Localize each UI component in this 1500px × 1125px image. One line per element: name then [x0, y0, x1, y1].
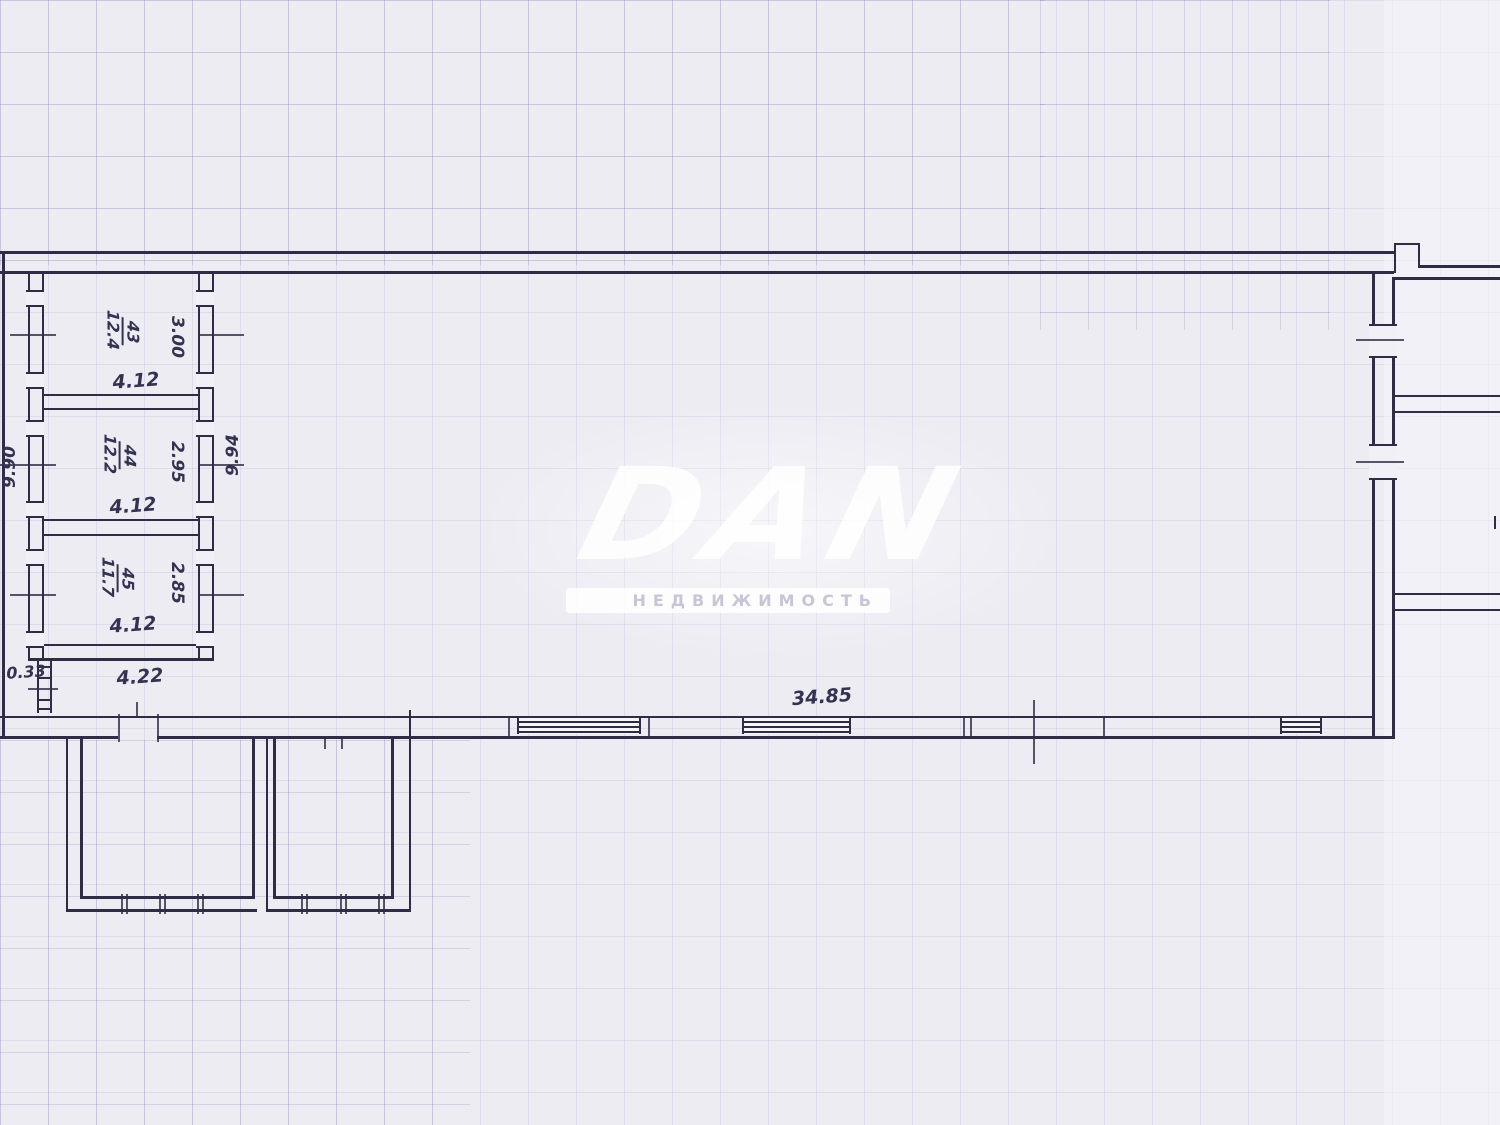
porch-step-tick	[121, 894, 123, 914]
wall-sep-43-44-b	[42, 408, 200, 410]
wall-bottom-outer-a	[0, 736, 118, 739]
watermark-bar: НЕДВИЖИМОСТЬ	[566, 588, 890, 613]
dim-hall-width: 34.85	[791, 684, 852, 710]
dim-porch-width: 4.22	[116, 664, 164, 689]
room-45-label: 45 11.7	[99, 554, 136, 601]
porch-step-tick	[345, 894, 347, 914]
porch2-wall-bottom	[273, 896, 394, 899]
chimney-right	[50, 661, 52, 713]
wall-joint	[970, 716, 972, 737]
porch-step-tick	[306, 894, 308, 914]
door-jamb	[341, 738, 343, 749]
dim-tick	[198, 594, 244, 596]
block-wall-bottom-outer	[28, 658, 214, 661]
window-opening	[26, 420, 44, 437]
porch1-outer-bottom	[66, 909, 257, 912]
chimney-rung	[37, 699, 52, 701]
dim-tick	[1356, 461, 1404, 463]
door-opening	[196, 549, 214, 566]
dim-inner-total: 9.94	[223, 434, 243, 476]
graph-grid-topright	[1040, 0, 1330, 330]
room-43-area: 12.4	[104, 307, 122, 352]
porch2-outer-left	[266, 736, 268, 911]
porch-step-tick	[202, 894, 204, 914]
porch1-wall-bottom	[80, 896, 255, 899]
door-jamb	[1494, 516, 1496, 529]
room-45-depth-dim: 2.85	[167, 562, 187, 604]
wall-top-inner	[0, 271, 1394, 274]
porch-step-tick	[301, 894, 303, 914]
room-44-number: 44	[119, 441, 139, 471]
porch2-wall-left	[273, 736, 276, 898]
room-43-number: 43	[122, 317, 142, 347]
wall-top-right-outer	[1418, 265, 1500, 268]
room-45-width-dim: 4.12	[109, 612, 157, 637]
wall-joint	[963, 716, 965, 737]
dim-tick	[198, 334, 244, 336]
door-jamb	[118, 714, 120, 742]
dim-extension-line	[1033, 700, 1035, 764]
block-wall-bottom-inner	[28, 644, 214, 646]
wall-sep-44-45-a	[42, 519, 200, 521]
dim-tick	[10, 334, 56, 336]
graph-grid-bottomleft	[0, 740, 470, 1125]
right-room-wall-a	[1392, 395, 1500, 397]
door-opening	[196, 631, 214, 648]
room-44-depth-dim: 2.95	[167, 441, 187, 483]
wall-bottom-inner	[0, 716, 1374, 718]
porch-step-tick	[159, 894, 161, 914]
door-opening	[196, 290, 214, 307]
dim-tick	[136, 702, 138, 716]
porch-step-tick	[197, 894, 199, 914]
room-43-depth-dim: 3.00	[167, 316, 187, 358]
window-hatched	[517, 718, 641, 734]
chimney-rung	[37, 708, 52, 710]
wall-left-outer	[2, 251, 5, 736]
wall-top-right-inner	[1394, 277, 1500, 280]
room-45-number: 45	[117, 564, 137, 594]
window-hatched	[1280, 718, 1322, 734]
right-room-wall-b	[1392, 411, 1500, 413]
wall-joint	[1103, 716, 1105, 737]
wall-joint	[508, 716, 510, 737]
door-opening	[196, 501, 214, 518]
porch1-wall-left	[80, 736, 83, 898]
room-44-width-dim: 4.12	[109, 493, 157, 518]
graph-grid-topleft	[0, 0, 1045, 265]
door-opening	[196, 420, 214, 437]
window-opening	[26, 501, 44, 518]
porch-step-tick	[378, 894, 380, 914]
porch1-wall-right	[252, 736, 255, 898]
room-44-label: 44 12.2	[101, 431, 138, 478]
window-opening	[26, 372, 44, 389]
door-jamb	[324, 738, 326, 749]
dim-tick	[1356, 339, 1404, 341]
right-room-wall-d	[1392, 609, 1500, 611]
window-opening	[26, 631, 44, 648]
window-opening	[26, 549, 44, 566]
porch-step-tick	[164, 894, 166, 914]
room-43-width-dim: 4.12	[112, 368, 160, 393]
porch-step-tick	[340, 894, 342, 914]
porch-step-tick	[126, 894, 128, 914]
dim-tick	[10, 594, 56, 596]
wall-top-outer	[0, 251, 1394, 254]
scan-light-band	[1384, 0, 1500, 1125]
watermark-logo: DAN	[568, 452, 977, 580]
room-43-label: 43 12.4	[104, 307, 141, 354]
wall-joint	[648, 716, 650, 737]
porch2-wall-right	[391, 736, 394, 898]
floor-plan-canvas: DAN НЕДВИЖИМОСТЬ	[0, 0, 1500, 1125]
wall-top-step-h	[1394, 243, 1418, 245]
room-45-area: 11.7	[99, 554, 117, 599]
porch1-outer-left	[66, 736, 68, 911]
wall-top-step-v2	[1418, 243, 1420, 267]
wall-sep-44-45-b	[42, 534, 200, 536]
door-opening	[196, 372, 214, 389]
watermark-subtitle: НЕДВИЖИМОСТЬ	[632, 591, 878, 610]
window-hatched	[742, 718, 851, 734]
room-44-area: 12.2	[101, 431, 119, 476]
door-jamb	[157, 714, 159, 742]
wall-top-step-v1	[1394, 243, 1396, 273]
dim-flue-width: 0.33	[6, 661, 47, 683]
dim-left-total: 9.90	[0, 446, 20, 488]
porch-step-tick	[383, 894, 385, 914]
porch2-outer-bottom	[266, 909, 411, 912]
porch2-outer-right	[409, 710, 411, 912]
wall-sep-43-44-a	[42, 394, 200, 396]
dim-tick	[28, 688, 58, 690]
window-opening	[26, 290, 44, 307]
right-room-wall-c	[1392, 593, 1500, 595]
window-opening	[1369, 324, 1397, 358]
